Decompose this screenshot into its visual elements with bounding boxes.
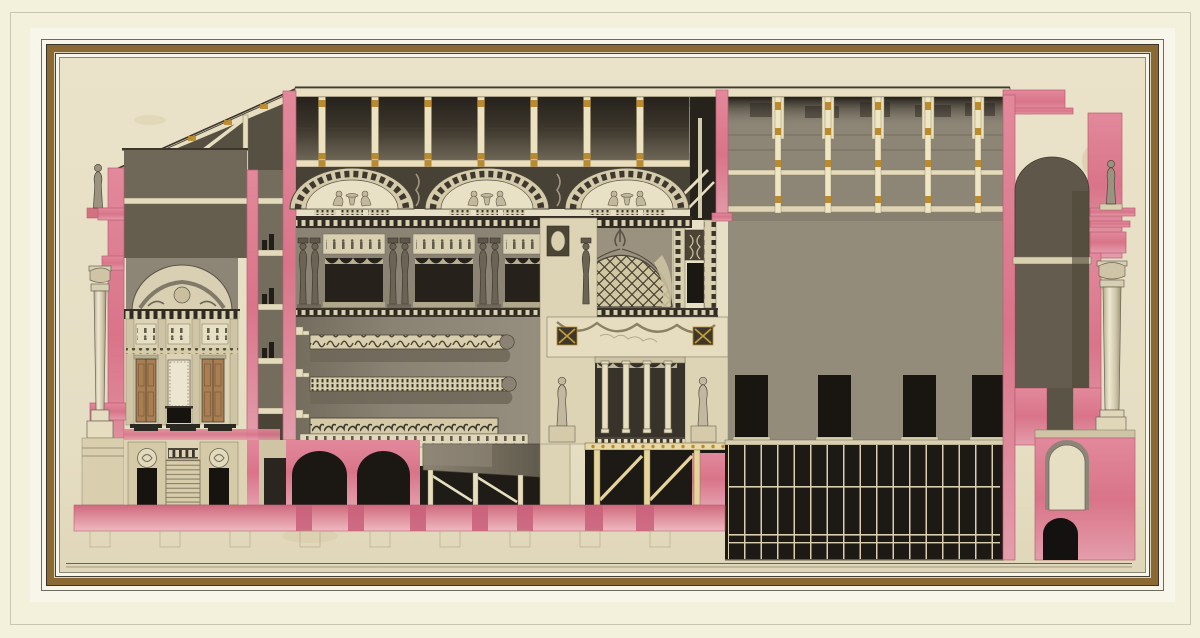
entrance-stair: [166, 448, 200, 505]
scenery-wall: [728, 213, 1004, 440]
section-wall-pink: [247, 170, 258, 440]
rear-lower-block: [1035, 430, 1135, 560]
foyer-mirror: [168, 360, 190, 408]
stage-floor-beam: [585, 443, 728, 450]
theater-section-drawing: [60, 58, 1145, 572]
box-unit: [323, 234, 385, 307]
corridor-vaults: [247, 440, 420, 505]
entrance-doorway-2: [209, 468, 229, 505]
balcony-tiers: [296, 317, 540, 447]
rear-doorway: [1043, 518, 1078, 560]
forestage-framing: [585, 450, 725, 505]
tier-1: [310, 335, 514, 362]
entrance-doorway: [137, 468, 157, 505]
auditorium-front-wall-pink: [283, 91, 296, 440]
box-unit: [503, 234, 543, 307]
foyer-door: [134, 355, 158, 422]
framed-drawing: [0, 0, 1200, 638]
foyer-lunette: [126, 258, 238, 312]
box-gallery: [296, 220, 718, 318]
drawing-paper: [60, 58, 1145, 572]
orchestra-pit: [420, 435, 570, 505]
tier-2: [310, 377, 516, 404]
attic-space: [296, 97, 716, 167]
foyer-paneling: [126, 319, 238, 425]
fireplace: [167, 408, 191, 423]
proscenium-pilasters: [673, 220, 716, 308]
garland-frieze: [547, 317, 728, 357]
understage-grid: [725, 445, 1004, 561]
box-unit: [413, 234, 475, 307]
foyer-door-2: [200, 355, 226, 422]
stage-house: [725, 97, 1004, 561]
